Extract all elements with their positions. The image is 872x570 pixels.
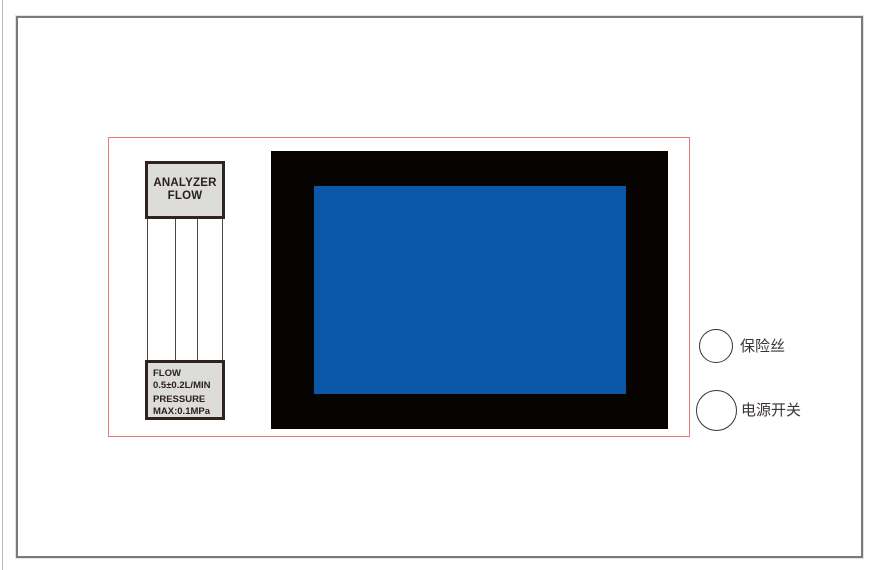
flow-spec-line1: FLOW <box>153 368 222 380</box>
flow-spec-plate: FLOW 0.5±0.2L/MIN PRESSURE MAX:0.1MPa <box>145 360 225 420</box>
fuse-label: 保险丝 <box>740 339 785 354</box>
analyzer-flow-nameplate: ANALYZER FLOW <box>145 161 225 219</box>
analyzer-flow-nameplate-line2: FLOW <box>168 190 203 203</box>
power-switch-label: 电源开关 <box>741 403 801 418</box>
flow-tube-inner-line-right <box>197 219 199 360</box>
flow-tube-inner-line-left <box>175 219 177 360</box>
flow-spec-line2: 0.5±0.2L/MIN <box>153 380 222 392</box>
analyzer-flow-nameplate-line1: ANALYZER <box>153 177 216 190</box>
flow-spec-line3: PRESSURE <box>153 394 222 406</box>
analyzer-front-panel: ANALYZER FLOW FLOW 0.5±0.2L/MIN PRESSURE… <box>16 16 863 558</box>
fuse-holder-circle <box>699 329 733 363</box>
page-edge-line <box>2 0 3 570</box>
display-screen <box>314 186 626 394</box>
flow-spec-line4: MAX:0.1MPa <box>153 406 222 418</box>
power-switch-circle <box>696 390 737 431</box>
drawing-canvas: ANALYZER FLOW FLOW 0.5±0.2L/MIN PRESSURE… <box>0 0 872 570</box>
flow-meter-tube <box>147 219 223 360</box>
display-bezel <box>271 151 668 429</box>
